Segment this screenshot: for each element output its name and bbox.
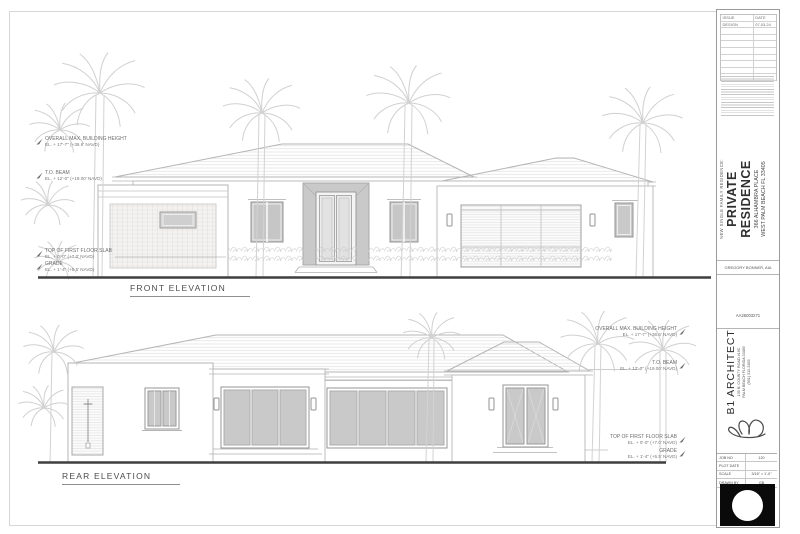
stamp-circle <box>732 490 763 521</box>
info-row-scale: SCALE 3/16" = 1'-0" <box>717 471 777 479</box>
firm-name: B1 ARCHITECT <box>725 326 737 418</box>
annotation-rear-to-beam: T.O. BEAM EL. + 12'-0" (+19.00' NAVD) <box>620 360 686 372</box>
leader-arrow-icon <box>679 328 686 335</box>
project-type-label: NEW SINGLE FAMILY RESIDENCE: <box>719 135 724 263</box>
issue-table-header: ISSUE DATE <box>721 15 776 22</box>
rear-elevation-title: REAR ELEVATION <box>62 471 180 485</box>
annotation-rear-max-height: OVERALL MAX. BUILDING HEIGHT EL. + 17'-7… <box>595 326 686 338</box>
firm-logo-icon <box>725 410 769 450</box>
drawing-sheet: OVERALL MAX. BUILDING HEIGHT EL. + 17'-7… <box>0 0 800 534</box>
annotation-front-grade: GRADE EL. + 1'-4" (+5.5' NAVD) <box>36 261 94 273</box>
sheet-stamp <box>720 484 775 526</box>
annotation-rear-grade: GRADE EL. + 1'-4" (+5.5' NAVD) <box>628 448 686 460</box>
front-right-roof <box>437 158 653 182</box>
annotation-front-max-height: OVERALL MAX. BUILDING HEIGHT EL. + 17'-7… <box>36 136 127 148</box>
annotation-front-to-beam: T.O. BEAM EL. + 12'-0" (+19.00' NAVD) <box>36 170 102 182</box>
project-name: PRIVATE RESIDENCE <box>725 135 753 263</box>
leader-arrow-icon <box>36 263 43 270</box>
project-address-line2: WEST PALM BEACH FL 33405 <box>761 135 768 263</box>
leader-arrow-icon <box>679 450 686 457</box>
front-elevation-drawing <box>21 53 711 280</box>
rear-sconce-1 <box>214 398 219 410</box>
rear-sconce-3 <box>489 398 494 410</box>
info-row-plot-date: PLOT DATE <box>717 462 777 470</box>
issue-table: ISSUE DATE DESIGN 07.03.24 <box>720 14 777 81</box>
project-address-line1: 366 ALHAMBRA PLACE <box>754 135 761 263</box>
rear-sconce-4 <box>553 398 558 410</box>
front-elevation-title: FRONT ELEVATION <box>130 283 250 297</box>
leader-arrow-icon <box>679 436 686 443</box>
front-sconce-left <box>447 214 452 226</box>
annotation-front-slab: TOP OF FIRST FLOOR SLAB EL. + 0'-0" (+7.… <box>36 248 112 260</box>
firm-phone: (561) 312-3453 <box>747 326 752 418</box>
leader-arrow-icon <box>36 250 43 257</box>
architect-name: GREGORY BONNER, AIA <box>717 260 779 275</box>
drawing-info-table: JOB NO 120 PLOT DATE SCALE 3/16" = 1'-0"… <box>717 453 777 488</box>
leader-arrow-icon <box>36 138 43 145</box>
general-notes-fine-print <box>721 76 774 116</box>
annotation-rear-slab: TOP OF FIRST FLOOR SLAB EL. + 0'-0" (+7.… <box>610 434 686 446</box>
leader-arrow-icon <box>679 362 686 369</box>
rear-sconce-2 <box>311 398 316 410</box>
front-sconce-right <box>590 214 595 226</box>
title-block: ISSUE DATE DESIGN 07.03.24 NEW SINGLE FA… <box>716 9 780 528</box>
project-title-vertical: NEW SINGLE FAMILY RESIDENCE: PRIVATE RES… <box>719 135 777 263</box>
info-row-job: JOB NO 120 <box>717 454 777 462</box>
firm-block-vertical: B1 ARCHITECT 139 N. COUNTY ROAD #19C PAL… <box>725 326 771 418</box>
license-number: AA26003271 <box>717 313 779 318</box>
front-shrub-row <box>228 244 612 264</box>
leader-arrow-icon <box>36 172 43 179</box>
issue-table-row: DESIGN 07.03.24 <box>721 22 776 29</box>
front-main-roof <box>115 144 474 177</box>
